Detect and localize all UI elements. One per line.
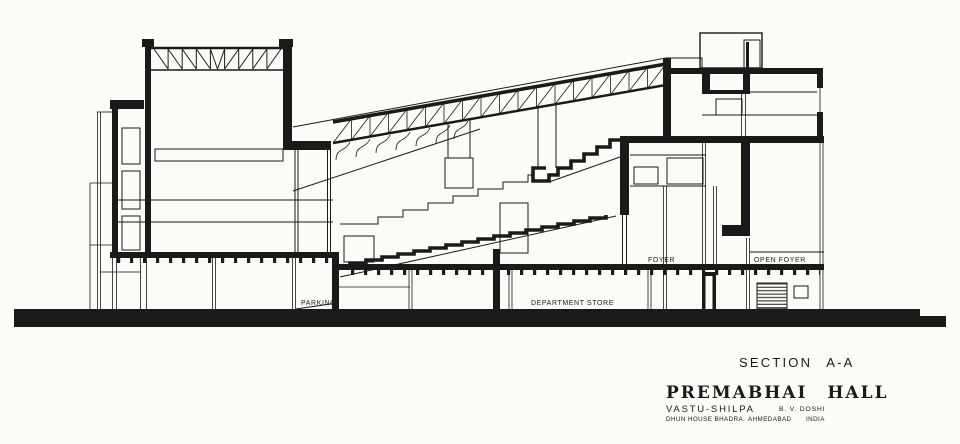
drawing-sheet: FOYER OPEN FOYER <box>0 0 960 444</box>
basement-level: PARKING DEPARTMENT STORE <box>100 186 808 309</box>
department-store-label: DEPARTMENT STORE <box>531 300 614 307</box>
acoustic-ceiling <box>293 129 480 191</box>
left-annex <box>90 100 144 309</box>
ceiling-box <box>445 158 473 188</box>
stage-roof-truss-web <box>154 49 281 69</box>
project-title: PREMABHAI HALL <box>666 383 889 403</box>
parking-label: PARKING <box>301 300 336 307</box>
roof-slab <box>671 68 823 74</box>
entry-stair <box>757 283 787 309</box>
upper-foyer-slab <box>629 136 824 143</box>
architect-name: B. V. DOSHI <box>779 406 825 413</box>
foyer-label: FOYER <box>648 257 675 264</box>
joist-ticks <box>342 270 820 275</box>
section-drawing: FOYER OPEN FOYER <box>0 0 960 444</box>
open-foyer-label: OPEN FOYER <box>754 257 806 264</box>
ground-floor-slabs <box>110 252 824 309</box>
balcony-back-wall <box>620 136 629 215</box>
stage-box <box>344 236 374 262</box>
raked-floor <box>337 215 606 266</box>
city-label: AHMEDABAD <box>748 416 792 423</box>
roof-truss-web <box>333 64 666 143</box>
seating-rows <box>340 175 533 224</box>
parapet-cap <box>279 39 293 47</box>
penthouse <box>700 33 762 68</box>
parapet-cap <box>142 39 154 47</box>
ground-line <box>14 309 946 327</box>
stage-opening-panel <box>155 149 283 161</box>
auditorium-roof-truss <box>293 58 702 191</box>
foyer-zone: FOYER OPEN FOYER <box>629 136 824 309</box>
section-label: SECTION A-A <box>739 355 855 370</box>
basement-window <box>794 286 808 298</box>
truss-end-wall <box>663 58 671 136</box>
interior-box <box>500 203 528 253</box>
auditorium-interior <box>337 105 629 277</box>
address-line: DHUN HOUSE BHADRA. <box>666 416 745 423</box>
firm-name: VASTU-SHILPA <box>666 404 755 415</box>
joist-ticks <box>112 258 332 263</box>
stage-tower <box>118 39 333 253</box>
title-block: SECTION A-A PREMABHAI HALL VASTU-SHILPA … <box>666 355 889 423</box>
country-label: INDIA <box>806 416 825 423</box>
foyer-stub-wall <box>741 143 750 227</box>
